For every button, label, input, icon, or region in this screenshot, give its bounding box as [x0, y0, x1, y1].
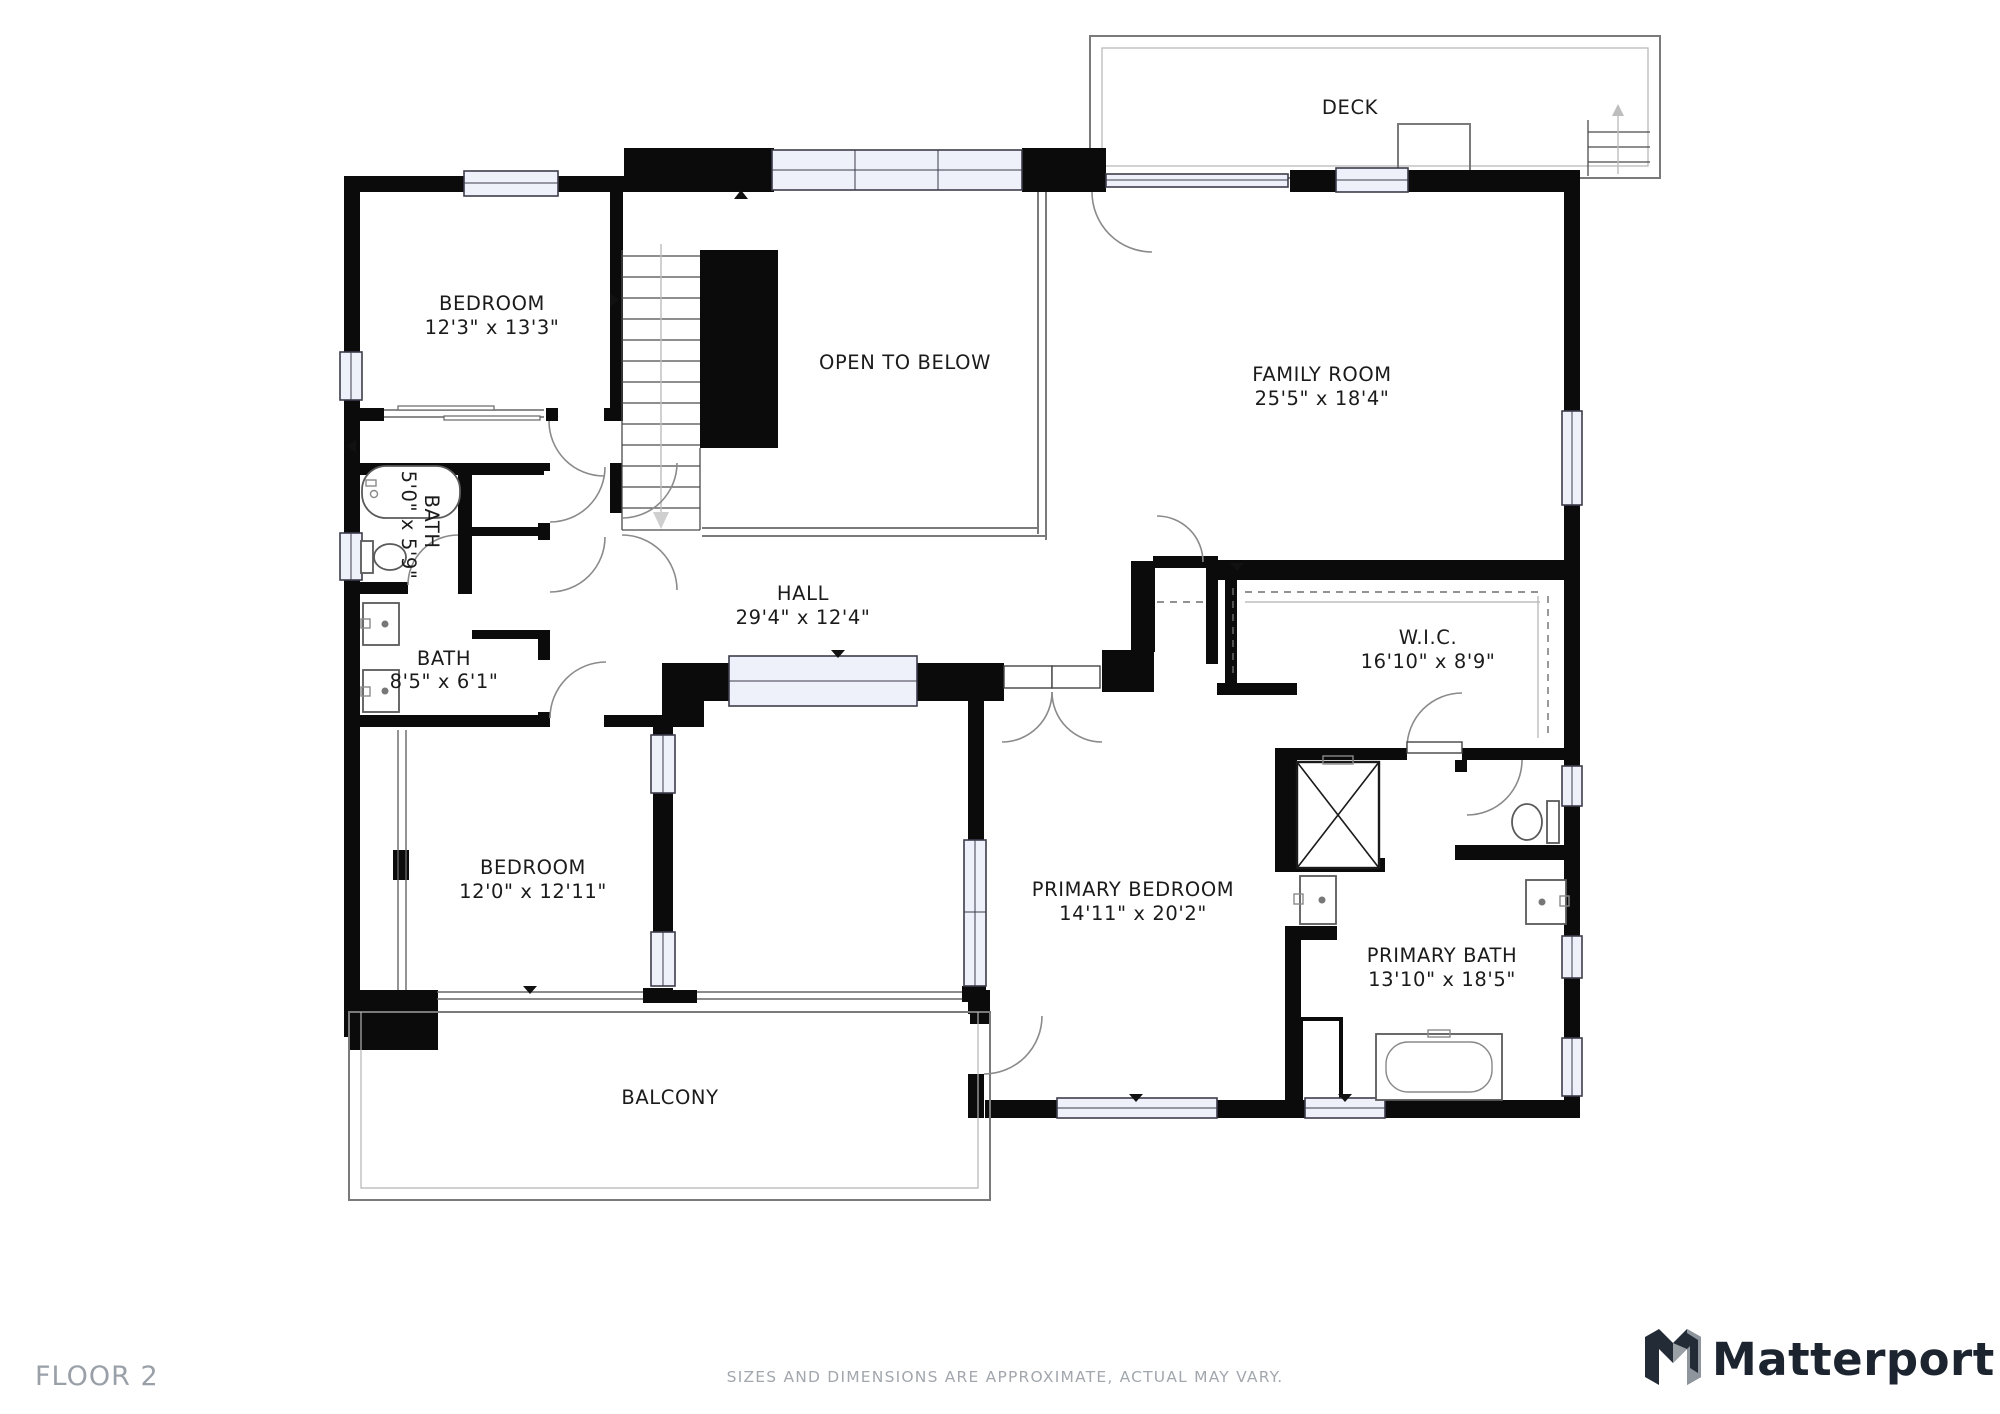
door-arc-landing-b	[622, 535, 677, 590]
window-family-top	[1336, 168, 1408, 192]
door-arc-water-closet	[1467, 760, 1522, 815]
door-arc-entry-closet	[1157, 516, 1203, 562]
label-primary-bath-dims: 13'10" x 18'5"	[1368, 968, 1516, 991]
door-arc-balcony	[984, 1016, 1042, 1074]
label-primary-bath: PRIMARY BATH	[1367, 944, 1518, 967]
window-bath-right-a	[1562, 766, 1582, 806]
matterport-logo-icon	[1645, 1329, 1701, 1385]
label-primary-bedroom-dims: 14'11" x 20'2"	[1059, 902, 1207, 925]
toilet-water-closet-icon	[1512, 801, 1559, 843]
matterport-logo-text: Matterport	[1712, 1333, 1995, 1386]
window-left-a	[340, 352, 362, 400]
window-center-room-right	[964, 840, 986, 986]
label-bath-hall: BATH	[417, 647, 471, 670]
window-bedroom-lower-right-a	[651, 735, 675, 793]
label-balcony: BALCONY	[621, 1086, 718, 1109]
label-bedroom-lower: BEDROOM	[480, 856, 586, 879]
door-arc-landing-a	[622, 463, 677, 518]
door-arc-primary-double-right	[1052, 692, 1102, 742]
label-wic-dims: 16'10" x 8'9"	[1361, 650, 1496, 673]
label-family-room-dims: 25'5" x 18'4"	[1255, 387, 1390, 410]
label-bedroom-lower-dims: 12'0" x 12'11"	[459, 880, 607, 903]
window-bath-right-c	[1562, 1038, 1582, 1096]
floor-label: FLOOR 2	[35, 1361, 159, 1392]
window-open-below-top	[772, 150, 1022, 190]
label-bedroom-upper: BEDROOM	[439, 292, 545, 315]
label-hall-dims: 29'4" x 12'4"	[736, 606, 871, 629]
balcony-slider-center-room	[697, 992, 962, 999]
window-bath-right-b	[1562, 936, 1582, 978]
sink-bath-hall-a-icon	[361, 603, 399, 645]
label-wic: W.I.C.	[1399, 626, 1458, 649]
sink-primary-alcove-icon	[1294, 876, 1336, 924]
closet-slider-bedroom-upper	[384, 406, 544, 420]
door-arc-wic	[1407, 693, 1462, 748]
shower-icon	[1297, 756, 1379, 868]
bathtub-primary-icon	[1376, 1030, 1502, 1100]
floor-plan-canvas: DECK BEDROOM 12'3" x 13'3" OPEN TO BELOW…	[0, 0, 2000, 1414]
label-bath-hall-dims: 8'5" x 6'1"	[390, 670, 499, 693]
door-arc-deck-entry	[1092, 192, 1152, 252]
sink-primary-bath-icon	[1526, 880, 1569, 924]
window-left-b	[340, 533, 362, 580]
window-hall-south	[729, 656, 917, 706]
door-arc-closet-b	[550, 537, 605, 592]
disclaimer-text: SIZES AND DIMENSIONS ARE APPROXIMATE, AC…	[727, 1368, 1284, 1386]
label-deck: DECK	[1322, 96, 1379, 119]
label-primary-bedroom: PRIMARY BEDROOM	[1032, 878, 1234, 901]
balcony-slider-bedroom-lower	[437, 992, 643, 999]
footer: FLOOR 2 SIZES AND DIMENSIONS ARE APPROXI…	[35, 1329, 1995, 1392]
window-bedroom-lower-right-b	[651, 932, 675, 986]
window-family-right	[1562, 411, 1582, 505]
door-arc-bedroom-lower	[550, 662, 606, 718]
door-arc-bedroom-upper	[549, 421, 604, 476]
door-arc-primary-double-left	[1002, 692, 1052, 742]
window-bedroom-upper-top	[464, 171, 558, 196]
floor-plan-page: DECK BEDROOM 12'3" x 13'3" OPEN TO BELOW…	[0, 0, 2000, 1414]
label-hall: HALL	[777, 582, 829, 605]
label-bedroom-upper-dims: 12'3" x 13'3"	[425, 316, 560, 339]
window-primary-bottom-a	[1057, 1098, 1217, 1118]
deck-stairs	[1588, 104, 1650, 176]
label-family-room: FAMILY ROOM	[1252, 363, 1391, 386]
staircase	[622, 244, 700, 530]
deck-sliding-door	[1106, 174, 1288, 187]
label-open-to-below: OPEN TO BELOW	[819, 351, 991, 374]
